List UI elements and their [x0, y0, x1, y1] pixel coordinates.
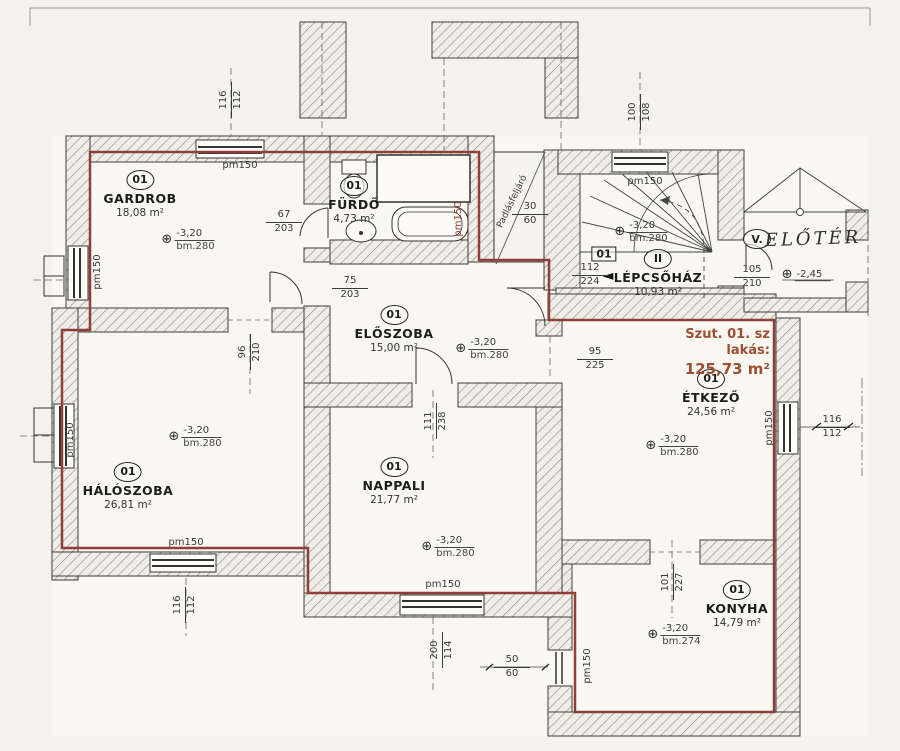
tub-platform — [377, 155, 470, 202]
floor-plan-drawing — [0, 0, 900, 751]
toilet-bowl — [344, 174, 364, 198]
eloter-floor — [744, 212, 846, 298]
toilet-tank — [342, 160, 366, 174]
shaft — [494, 152, 545, 264]
floor-plan: 01 GARDROB 18,08 m² 01 FÜRDŐ 4,73 m² 01 … — [0, 0, 900, 751]
